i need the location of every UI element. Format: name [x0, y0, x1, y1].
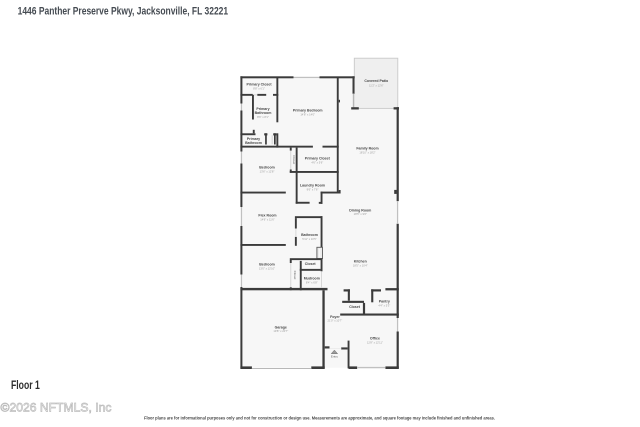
svg-text:Kitchen: Kitchen — [354, 260, 367, 264]
svg-text:4'6" x 5'6": 4'6" x 5'6" — [311, 160, 323, 164]
svg-text:Garage: Garage — [275, 325, 287, 329]
svg-text:Bathroom: Bathroom — [301, 233, 318, 237]
svg-text:5'11" x 10'5": 5'11" x 10'5" — [302, 237, 317, 241]
svg-text:Family Room: Family Room — [356, 147, 378, 151]
svg-text:Bedroom: Bedroom — [259, 263, 275, 267]
svg-text:9'6" x 7'6": 9'6" x 7'6" — [307, 187, 319, 191]
svg-text:Floor 1: Floor 1 — [11, 378, 40, 392]
svg-text:Flex Room: Flex Room — [258, 214, 276, 218]
svg-text:13'6" x 12'8": 13'6" x 12'8" — [260, 169, 275, 173]
svg-text:Pantry: Pantry — [379, 300, 390, 304]
svg-text:Covered Patio: Covered Patio — [364, 79, 389, 83]
svg-text:Primary Bedroom: Primary Bedroom — [293, 109, 323, 113]
svg-text:18'5" x 9'6": 18'5" x 9'6" — [354, 212, 367, 216]
svg-text:Foyer: Foyer — [330, 315, 340, 319]
svg-text:11'2" x 12'6": 11'2" x 12'6" — [369, 83, 384, 87]
svg-text:Closet: Closet — [293, 271, 297, 280]
svg-text:Closet: Closet — [349, 305, 361, 309]
svg-text:Bathroom: Bathroom — [255, 111, 272, 115]
svg-text:14'6" x 11'6": 14'6" x 11'6" — [260, 217, 275, 221]
svg-text:Dining Room: Dining Room — [349, 208, 371, 212]
svg-text:Primary Closet: Primary Closet — [246, 83, 272, 87]
svg-text:14'8" x 14'0": 14'8" x 14'0" — [300, 113, 315, 117]
svg-text:Closet: Closet — [305, 262, 317, 266]
svg-text:©2026 NFTMLS, Inc: ©2026 NFTMLS, Inc — [1, 401, 112, 415]
svg-text:13'0" x 12'10": 13'0" x 12'10" — [259, 267, 275, 271]
svg-text:Mudroom: Mudroom — [304, 277, 320, 281]
svg-text:19'8" x 20'7": 19'8" x 20'7" — [273, 329, 288, 333]
svg-text:Bathroom: Bathroom — [245, 141, 262, 145]
svg-text:Entry: Entry — [331, 355, 339, 359]
svg-text:18'5" x 10'4": 18'5" x 10'4" — [353, 264, 368, 268]
svg-text:Laundry Room: Laundry Room — [300, 184, 325, 188]
svg-text:4'4" x 5'3": 4'4" x 5'3" — [378, 303, 390, 307]
svg-text:8'4" x 6'8": 8'4" x 6'8" — [306, 281, 318, 285]
svg-text:12'8" x 12'11": 12'8" x 12'11" — [367, 340, 383, 344]
svg-text:8'6" x 8'1": 8'6" x 8'1" — [257, 115, 269, 119]
svg-text:Floor plans are for informatio: Floor plans are for informational purpos… — [144, 416, 495, 421]
svg-text:1446 Panther Preserve Pkwy, Ja: 1446 Panther Preserve Pkwy, Jacksonville… — [18, 6, 229, 18]
svg-text:Office: Office — [370, 337, 380, 341]
svg-text:Closet: Closet — [292, 155, 296, 164]
svg-text:18'10" x 18'2": 18'10" x 18'2" — [359, 151, 375, 155]
svg-text:Primary Closet: Primary Closet — [305, 156, 331, 160]
svg-text:21'0" x 10'7": 21'0" x 10'7" — [328, 319, 343, 323]
svg-text:8'8" x 6'1": 8'8" x 6'1" — [253, 87, 265, 91]
svg-text:Bedroom: Bedroom — [259, 166, 275, 170]
